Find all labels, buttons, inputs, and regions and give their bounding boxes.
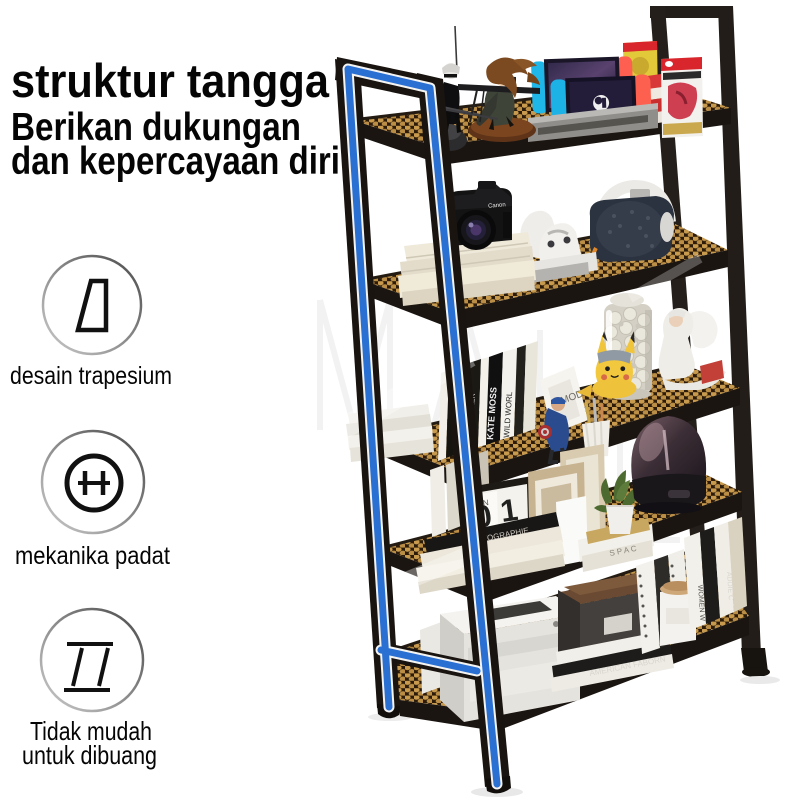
svg-text:dan kepercayaan diri: dan kepercayaan diri (11, 140, 340, 183)
svg-text:desain trapesium: desain trapesium (10, 362, 172, 390)
svg-text:struktur tangga: struktur tangga (11, 54, 330, 107)
svg-text:mekanika padat: mekanika padat (15, 542, 170, 570)
svg-text:untuk dibuang: untuk dibuang (22, 740, 157, 770)
